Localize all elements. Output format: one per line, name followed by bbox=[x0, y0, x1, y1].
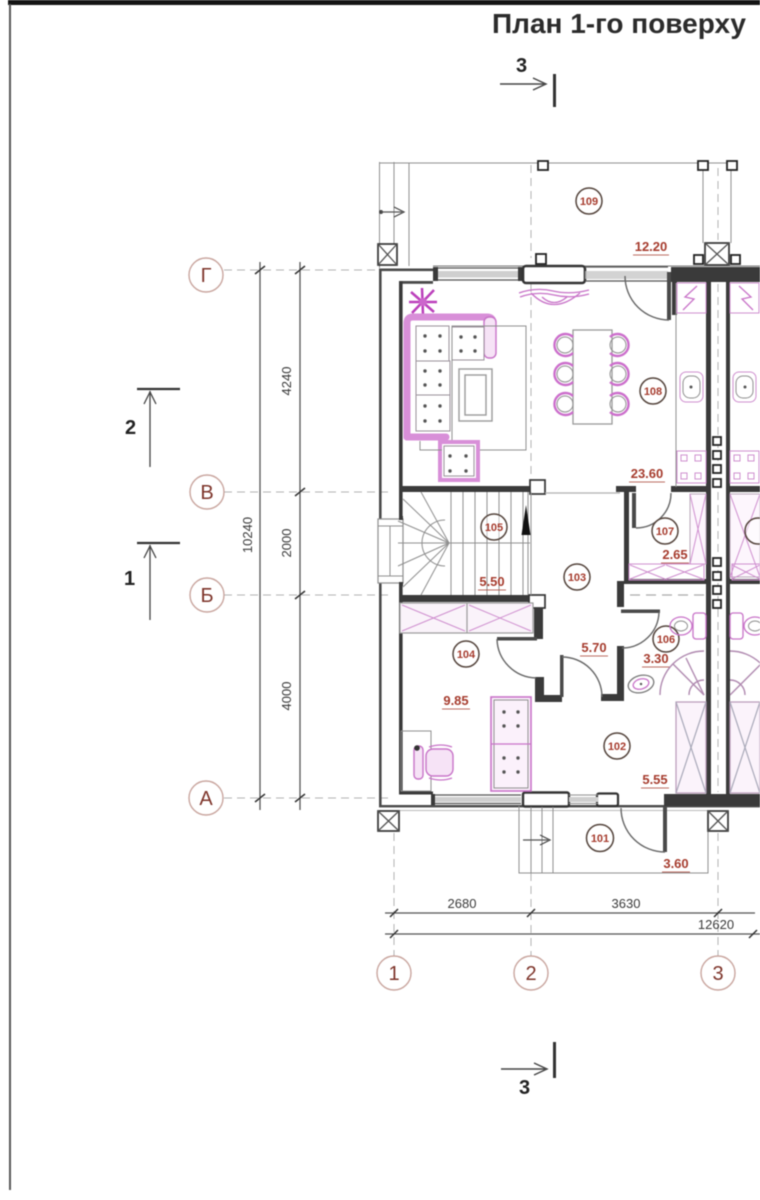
svg-text:12620: 12620 bbox=[698, 917, 734, 932]
svg-text:3: 3 bbox=[516, 55, 527, 77]
svg-text:Г: Г bbox=[201, 265, 212, 287]
svg-text:2.65: 2.65 bbox=[662, 547, 687, 562]
svg-text:9.85: 9.85 bbox=[443, 693, 468, 708]
svg-text:2000: 2000 bbox=[279, 529, 294, 558]
svg-text:4000: 4000 bbox=[279, 682, 294, 711]
svg-text:3: 3 bbox=[712, 963, 723, 985]
svg-text:107: 107 bbox=[656, 526, 674, 538]
svg-text:109: 109 bbox=[580, 196, 598, 208]
svg-text:106: 106 bbox=[657, 634, 675, 646]
svg-text:А: А bbox=[199, 788, 213, 810]
svg-text:101: 101 bbox=[591, 833, 609, 845]
svg-text:5.50: 5.50 bbox=[479, 574, 504, 589]
svg-text:12.20: 12.20 bbox=[635, 239, 668, 254]
svg-text:4240: 4240 bbox=[279, 367, 294, 396]
svg-text:5.70: 5.70 bbox=[581, 640, 606, 655]
svg-text:5.55: 5.55 bbox=[642, 772, 667, 787]
svg-text:23.60: 23.60 bbox=[631, 466, 664, 481]
svg-text:Б: Б bbox=[200, 585, 213, 607]
svg-text:102: 102 bbox=[608, 741, 626, 753]
svg-text:103: 103 bbox=[568, 572, 586, 584]
svg-text:1: 1 bbox=[124, 568, 135, 590]
svg-text:2: 2 bbox=[525, 963, 536, 985]
svg-text:3: 3 bbox=[519, 1077, 530, 1099]
svg-text:План 1-го поверху: План 1-го поверху bbox=[492, 8, 746, 39]
svg-text:105: 105 bbox=[485, 522, 503, 534]
svg-text:В: В bbox=[200, 482, 213, 504]
svg-text:2680: 2680 bbox=[448, 896, 477, 911]
svg-text:10240: 10240 bbox=[240, 517, 255, 553]
svg-text:1: 1 bbox=[388, 963, 399, 985]
svg-text:3.30: 3.30 bbox=[643, 651, 668, 666]
svg-text:104: 104 bbox=[457, 649, 476, 661]
svg-text:108: 108 bbox=[644, 386, 662, 398]
svg-text:3630: 3630 bbox=[612, 896, 641, 911]
svg-text:3.60: 3.60 bbox=[663, 856, 688, 871]
svg-text:2: 2 bbox=[125, 417, 136, 439]
